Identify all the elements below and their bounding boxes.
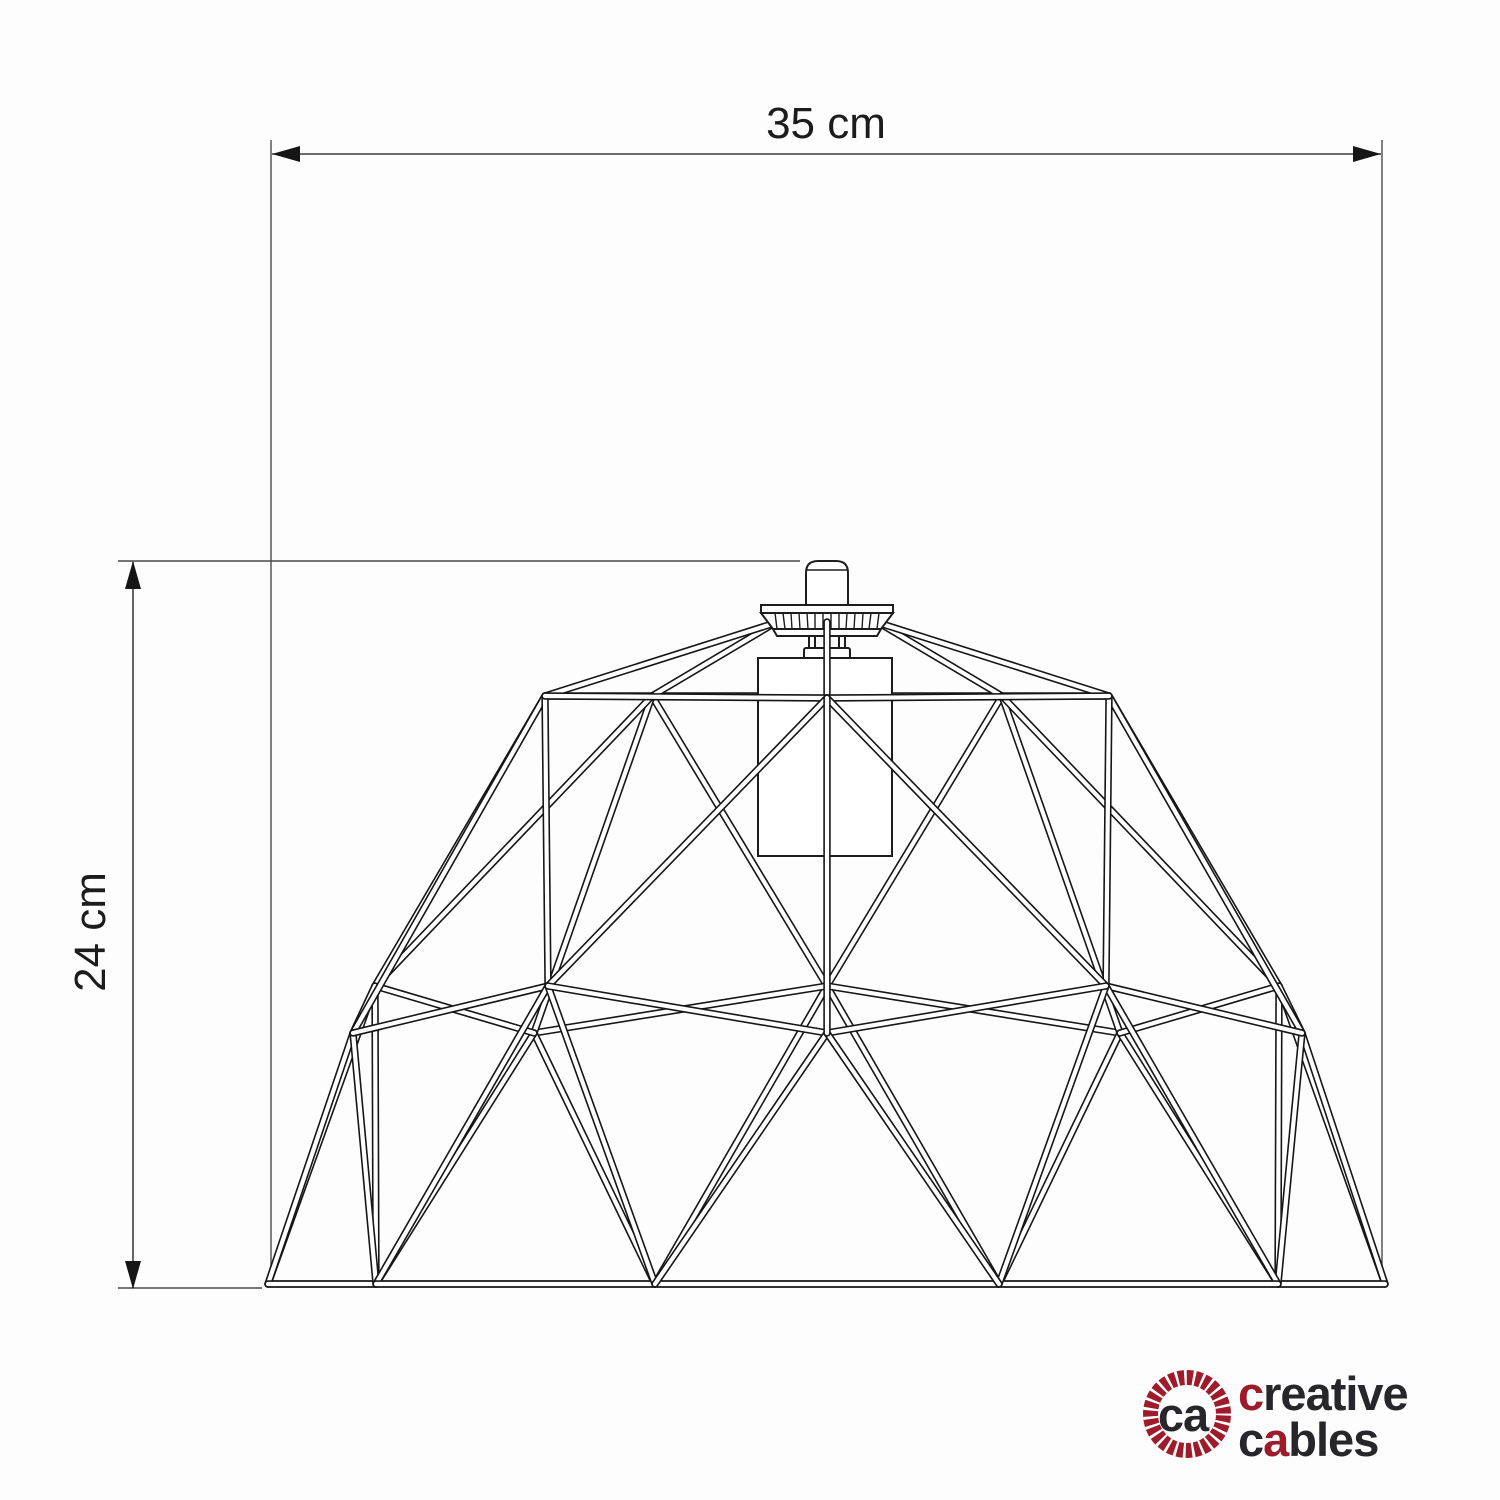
dome-strut — [534, 1033, 655, 1284]
dome-strut — [1302, 1033, 1385, 1284]
logo-word-cables: cables — [1238, 1413, 1378, 1466]
dome-strut — [376, 986, 548, 1284]
product-dimension-diagram: 35 cm 24 cm — [0, 0, 1500, 1500]
dome-strut — [879, 623, 1109, 696]
arrow-left-icon — [272, 146, 300, 162]
height-dimension-label: 24 cm — [66, 872, 115, 992]
dome-strut — [545, 623, 775, 696]
width-dimension-label: 35 cm — [766, 99, 886, 148]
dome-strut — [268, 1033, 353, 1284]
dome-strut — [655, 1033, 827, 1284]
logo-letter-start: c — [1238, 1413, 1263, 1466]
dome-strut — [545, 696, 827, 698]
dome-strut — [1002, 696, 1279, 986]
dome-strut — [999, 1033, 1120, 1284]
logo-letter-accent: a — [1263, 1413, 1290, 1466]
arrow-right-icon — [1353, 146, 1381, 162]
dome-strut — [548, 986, 655, 1284]
dome-strut — [827, 696, 1109, 698]
arrow-down-icon — [125, 1261, 141, 1289]
drawing-canvas: 35 cm 24 cm — [0, 0, 1500, 1500]
socket-cap — [806, 561, 848, 608]
dome-strut — [353, 696, 545, 1033]
brand-logo: ca creative cables — [1151, 1367, 1408, 1466]
dome-wireframe-front — [268, 622, 1385, 1284]
dome-strut — [999, 986, 1106, 1284]
logo-word-rest: bles — [1288, 1413, 1378, 1466]
dome-strut — [1106, 696, 1109, 986]
dome-strut — [827, 1033, 999, 1284]
dome-strut — [1106, 986, 1278, 1284]
dome-strut — [545, 696, 548, 986]
arrow-up-icon — [125, 561, 141, 589]
dome-strut — [1109, 696, 1302, 1033]
logo-monogram: ca — [1158, 1388, 1210, 1441]
dome-strut — [375, 696, 652, 986]
mounting-plate-top — [761, 605, 893, 613]
